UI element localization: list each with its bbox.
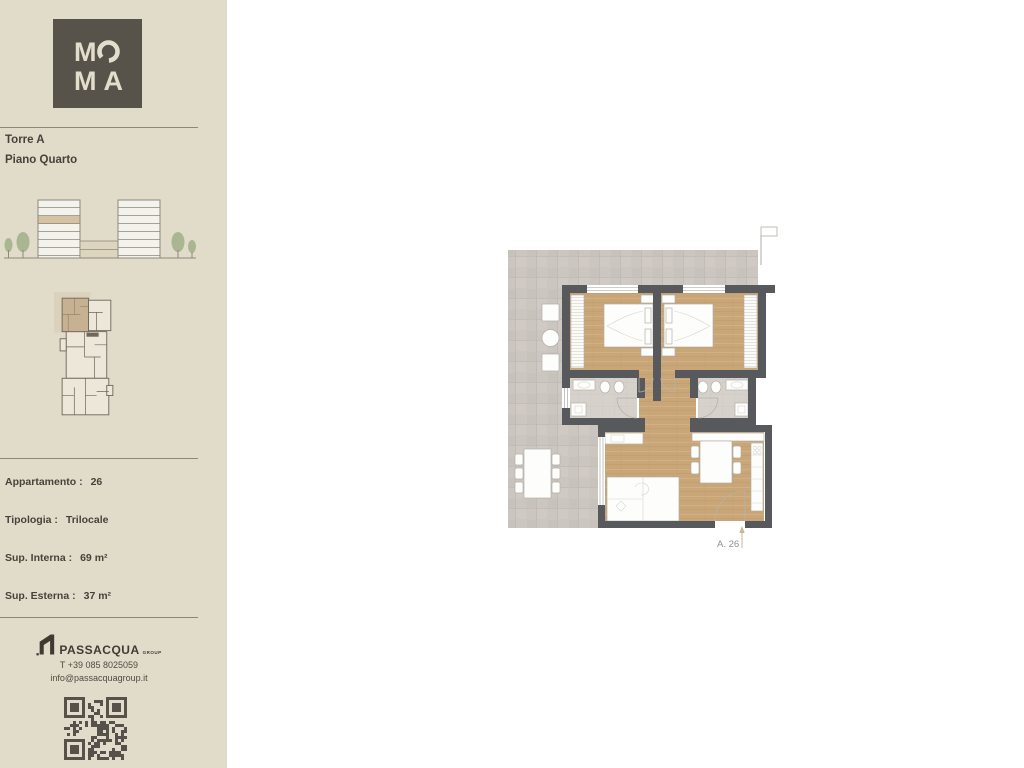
unit-label: A. 26 [717,539,739,550]
outdoor-round-table [542,330,559,347]
email-address: info@passacquagroup.it [0,673,198,683]
toilet [711,381,721,393]
detail-label: Appartamento : [5,476,83,488]
detail-row-internal-area: Sup. Interna :69 m² [5,552,108,564]
pillow [645,329,651,344]
chair [733,462,741,474]
pillow [666,308,672,323]
divider [0,127,198,128]
chair [733,446,741,458]
nightstand [641,348,654,356]
tree-icon [5,238,13,252]
divider [0,458,198,459]
nightstand [641,295,654,303]
detail-label: Sup. Interna : [5,552,72,564]
detail-label: Tipologia : [5,514,58,526]
floor-plan: A. 26 [495,215,780,550]
hallway-floor [639,370,696,432]
outdoor-chair [515,454,523,465]
moma-logo-letters: M MA [53,19,142,108]
key-plan [48,286,128,428]
chair [691,446,699,458]
logo-o-glyph [96,39,121,64]
toilet [600,381,610,393]
detail-label: Sup. Esterna : [5,590,76,602]
logo-letters-ma: MA [74,66,130,96]
brand-suffix: GROUP [143,650,162,657]
outdoor-chair [552,454,560,465]
detail-row-external-area: Sup. Esterna :37 m² [5,590,111,602]
wardrobe [744,295,757,368]
qr-code [64,697,127,760]
pillow [666,329,672,344]
chair [691,462,699,474]
tree-icon [172,232,185,252]
outdoor-chair [552,482,560,493]
outdoor-chair [515,468,523,479]
flag-marker-icon [761,227,777,265]
tower-label: Torre A [5,134,45,146]
moma-logo: M MA [53,19,142,108]
passacqua-mark-icon [36,632,56,657]
nightstand [662,295,675,303]
outdoor-chair [515,482,523,493]
sidebar: M MA Torre A Piano Quarto [0,0,227,768]
bidet [698,381,708,393]
key-plan-core [86,333,98,337]
building-elevation [2,192,198,268]
entrance-arrow-icon [739,526,744,548]
brochure-page: M MA Torre A Piano Quarto [0,0,1024,768]
floor-label: Piano Quarto [5,154,77,166]
shower [735,403,748,416]
detail-value: Trilocale [66,514,109,526]
logo-letter-m: M [74,37,97,67]
divider [0,617,198,618]
brand-name: PASSACQUA [59,643,139,657]
pillow [645,308,651,323]
passacqua-logo: PASSACQUA GROUP [0,632,198,657]
tree-icon [188,240,196,253]
outdoor-stool [542,354,559,371]
outdoor-chair [552,468,560,479]
dining-table [700,441,732,483]
detail-row-apartment: Appartamento :26 [5,476,102,488]
detail-row-type: Tipologia :Trilocale [5,514,109,526]
detail-value: 69 m² [80,552,107,564]
detail-value: 37 m² [84,590,111,602]
shower [571,403,586,416]
key-plan-highlighted-unit [62,298,88,331]
phone-number: T +39 085 8025059 [0,660,198,670]
bidet [614,381,624,393]
outdoor-dining-table [524,449,551,498]
wardrobe [571,295,584,368]
outdoor-stool [542,304,559,321]
nightstand [662,348,675,356]
kitchen-counter [692,433,764,441]
detail-value: 26 [91,476,103,488]
tree-icon [17,232,30,252]
